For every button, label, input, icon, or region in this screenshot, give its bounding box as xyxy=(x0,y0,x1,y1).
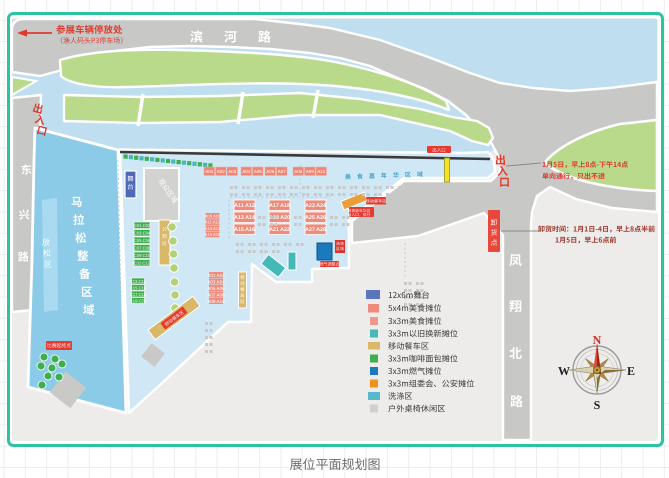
svg-text:C09 C10: C09 C10 xyxy=(134,253,151,258)
svg-text:A04: A04 xyxy=(242,169,251,174)
svg-text:C03 C04: C03 C04 xyxy=(134,231,151,236)
svg-text:C19 C20: C19 C20 xyxy=(130,298,147,303)
svg-text:A01 A02: A01 A02 xyxy=(207,273,225,278)
svg-text:A21 A22: A21 A22 xyxy=(269,227,290,233)
svg-text:A06: A06 xyxy=(266,169,275,174)
svg-text:C13 C14: C13 C14 xyxy=(130,279,147,284)
svg-text:A13 A14: A13 A14 xyxy=(234,215,255,221)
svg-text:C01 C02: C01 C02 xyxy=(134,223,151,228)
svg-text:E: E xyxy=(627,364,635,378)
svg-text:A11 A12: A11 A12 xyxy=(234,203,255,209)
svg-text:C11 C12: C11 C12 xyxy=(134,261,151,266)
svg-text:N: N xyxy=(593,333,602,347)
svg-text:C15 C16: C15 C16 xyxy=(130,285,147,290)
svg-text:A05 A06: A05 A06 xyxy=(207,286,225,291)
svg-text:A09: A09 xyxy=(306,169,315,174)
svg-text:C05 C06: C05 C06 xyxy=(134,238,151,243)
svg-text:A11 A12: A11 A12 xyxy=(205,220,221,225)
svg-text:A09 A10: A09 A10 xyxy=(207,299,225,304)
svg-text:A17 A18: A17 A18 xyxy=(269,203,290,209)
svg-text:A27 A28: A27 A28 xyxy=(305,227,326,233)
svg-text:C17 C18: C17 C18 xyxy=(130,292,147,297)
svg-text:A03 A04: A03 A04 xyxy=(207,280,225,285)
svg-text:A05: A05 xyxy=(254,169,263,174)
svg-text:A02: A02 xyxy=(217,169,226,174)
svg-text:A15 A16: A15 A16 xyxy=(205,232,222,237)
svg-text:A01: A01 xyxy=(205,169,214,174)
svg-text:C07 C08: C07 C08 xyxy=(134,246,151,251)
svg-text:A07: A07 xyxy=(278,169,287,174)
svg-text:A08: A08 xyxy=(294,169,303,174)
svg-text:A23 A24: A23 A24 xyxy=(305,203,326,209)
svg-text:W: W xyxy=(558,364,570,378)
svg-text:A09 A10: A09 A10 xyxy=(205,214,222,219)
svg-text:A03: A03 xyxy=(228,169,237,174)
svg-text:A10: A10 xyxy=(317,169,326,174)
svg-text:S: S xyxy=(594,398,601,412)
svg-text:A07 A08: A07 A08 xyxy=(207,293,225,298)
svg-text:A15 A16: A15 A16 xyxy=(234,227,255,233)
svg-text:A13 A14: A13 A14 xyxy=(205,226,222,231)
svg-text:A25 A26: A25 A26 xyxy=(305,215,326,221)
